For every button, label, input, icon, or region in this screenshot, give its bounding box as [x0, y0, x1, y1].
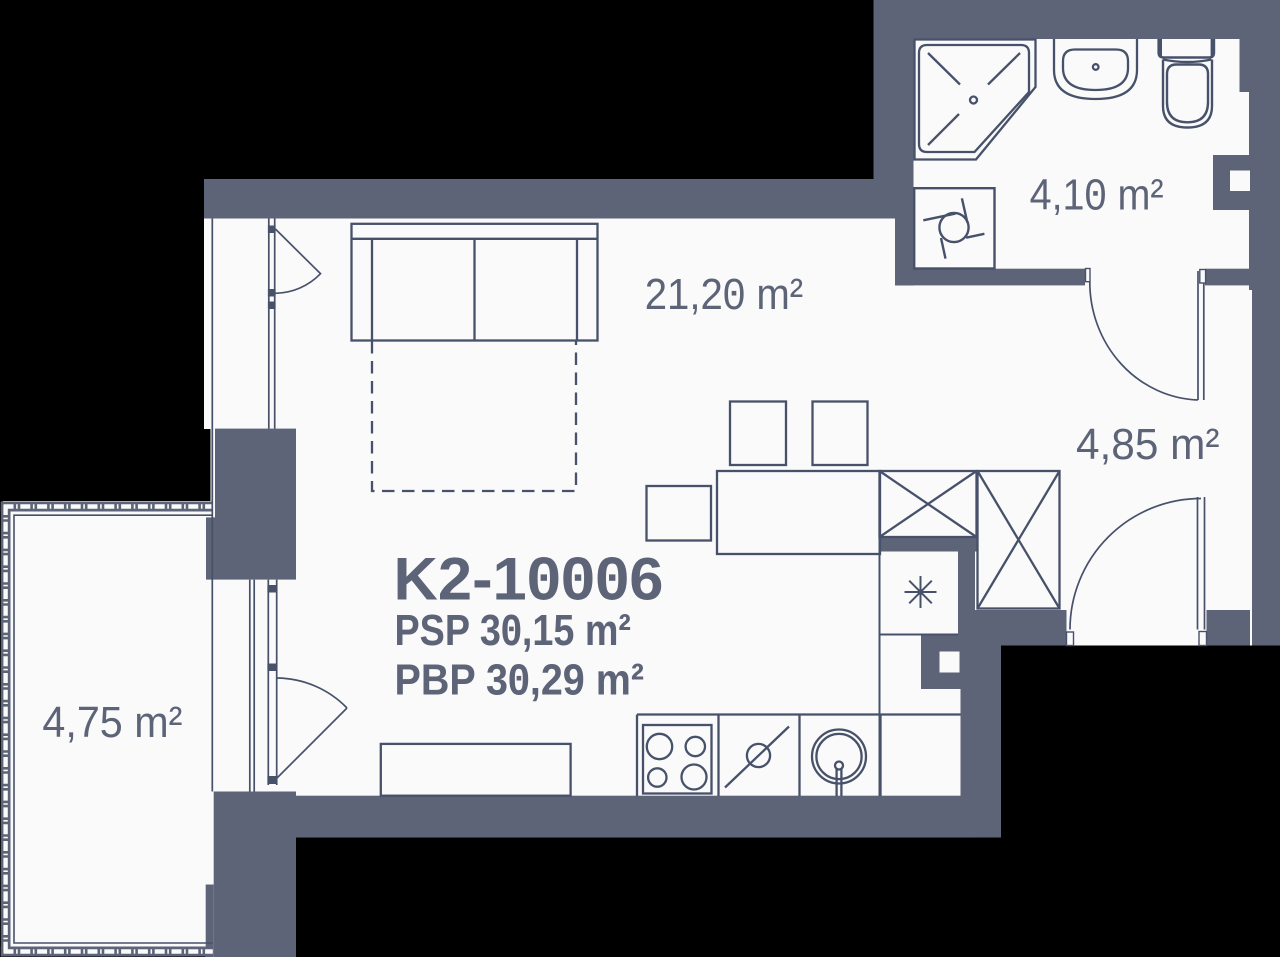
svg-text:K2-10006: K2-10006: [394, 546, 664, 613]
svg-text:4,85 m²: 4,85 m²: [1076, 420, 1220, 469]
svg-text:21,20 m²: 21,20 m²: [645, 270, 804, 319]
svg-text:4,75 m²: 4,75 m²: [42, 698, 182, 747]
